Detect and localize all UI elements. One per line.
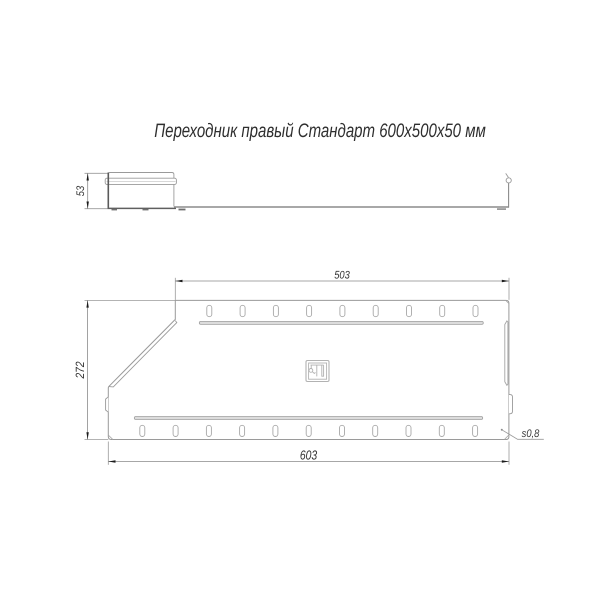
svg-text:s0,8: s0,8	[522, 428, 540, 440]
svg-text:Переходник правый Стандарт 600: Переходник правый Стандарт 600х500х50 мм	[154, 120, 486, 142]
svg-text:272: 272	[73, 361, 87, 379]
svg-text:503: 503	[334, 269, 350, 281]
svg-text:603: 603	[300, 448, 318, 463]
svg-text:53: 53	[75, 185, 87, 196]
